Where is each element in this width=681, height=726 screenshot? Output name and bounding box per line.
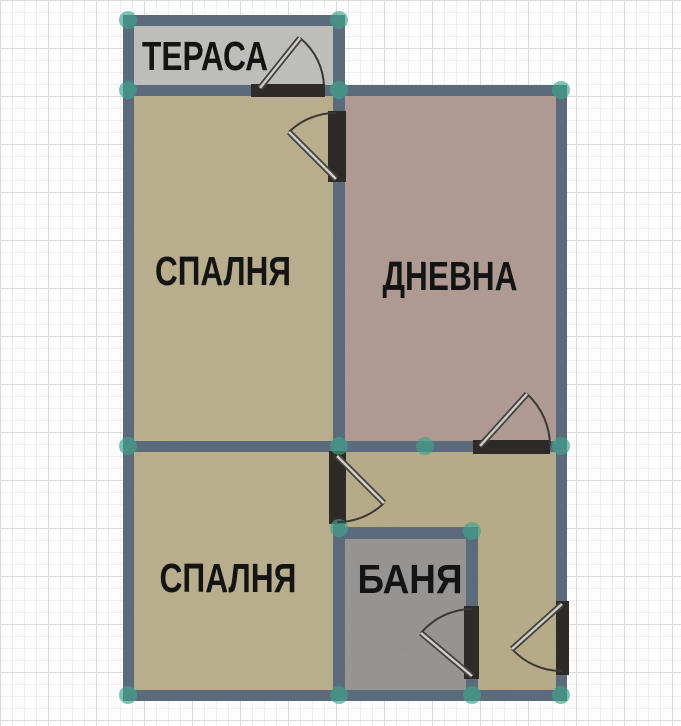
- wall-segment: [333, 522, 345, 690]
- wall-junction-marker: [330, 437, 348, 455]
- floorplan-svg: ТЕРАСА СПАЛНЯ ДНЕВНА СПАЛНЯ БАНЯ: [0, 0, 681, 726]
- wall-junction-marker: [552, 81, 570, 99]
- wall-junction-marker: [330, 686, 348, 704]
- wall-segment: [123, 15, 345, 26]
- wall-segment: [123, 15, 134, 701]
- wall-junction-marker: [119, 11, 137, 29]
- door-frame-entrance: [556, 601, 569, 675]
- wall-segment: [123, 85, 253, 96]
- room-label-bedroom-top: СПАЛНЯ: [155, 248, 291, 294]
- wall-segment: [333, 527, 478, 539]
- room-label-terrace: ТЕРАСА: [142, 33, 268, 79]
- floorplan-canvas: ТЕРАСА СПАЛНЯ ДНЕВНА СПАЛНЯ БАНЯ: [0, 0, 681, 726]
- wall-junction-marker: [119, 686, 137, 704]
- room-label-bathroom: БАНЯ: [358, 556, 463, 602]
- wall-junction-marker: [330, 11, 348, 29]
- wall-junction-marker: [463, 522, 481, 540]
- wall-junction-marker: [463, 686, 481, 704]
- wall-junction-marker: [119, 437, 137, 455]
- wall-junction-marker: [416, 437, 434, 455]
- room-label-bedroom-bottom: СПАЛНЯ: [160, 555, 297, 601]
- wall-junction-marker: [330, 81, 348, 99]
- wall-segment: [556, 85, 567, 603]
- wall-junction-marker: [119, 81, 137, 99]
- wall-junction-marker: [552, 437, 570, 455]
- room-label-living-room: ДНЕВНА: [383, 253, 518, 299]
- wall-segment: [321, 85, 567, 96]
- wall-segment: [333, 181, 345, 441]
- wall-junction-marker: [552, 686, 570, 704]
